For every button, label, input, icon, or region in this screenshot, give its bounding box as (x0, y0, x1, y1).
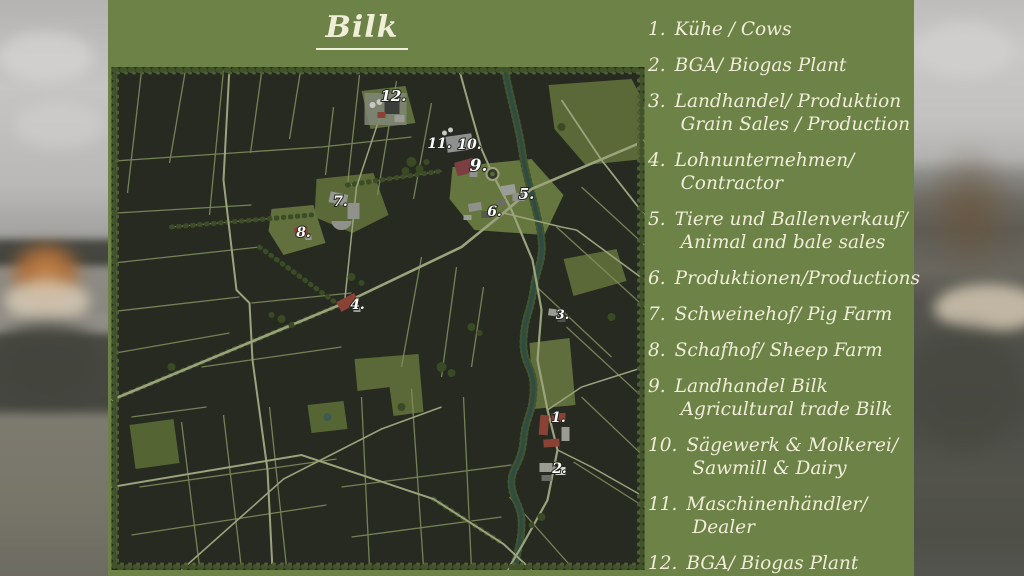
legend-item-text: BGA/ Biogas Plant (686, 552, 916, 575)
map-legend-panel: Bilk (108, 0, 914, 576)
background-photo-left-blur (0, 0, 110, 576)
cloud-blob (0, 32, 94, 82)
map-marker-4: 4. (350, 297, 365, 313)
aerial-map-svg: 12.11.10.9.5.6.7.8.4.3.1.2. (111, 67, 645, 570)
legend-item-line: Schafhof/ Sheep Farm (675, 339, 916, 362)
legend-item-line: Contractor (675, 172, 916, 195)
legend-item-11: 11.Maschinenhändler/Dealer (648, 493, 916, 539)
legend-item-10: 10.Sägewerk & Molkerei/Sawmill & Dairy (648, 434, 916, 480)
legend-item-text: Lohnunternehmen/Contractor (675, 149, 916, 195)
legend-item-text: Sägewerk & Molkerei/Sawmill & Dairy (686, 434, 916, 480)
legend-item-line: Landhandel/ Produktion (675, 90, 916, 113)
legend-item-line: BGA/ Biogas Plant (675, 54, 916, 77)
cloud-blob (914, 22, 1014, 77)
legend-item-8: 8.Schafhof/ Sheep Farm (648, 339, 916, 362)
map-marker-7: 7. (333, 194, 348, 210)
legend-item-text: Landhandel/ ProduktionGrain Sales / Prod… (675, 90, 916, 136)
legend-item-number: 4. (648, 149, 675, 195)
legend-item-5: 5.Tiere und Ballenverkauf/Animal and bal… (648, 208, 916, 254)
map-roundabout-center (490, 172, 495, 177)
map-marker-9: 9. (470, 156, 488, 176)
legend-item-line: Maschinenhändler/ (686, 493, 916, 516)
legend-item-number: 8. (648, 339, 675, 362)
legend-item-1: 1.Kühe / Cows (648, 18, 916, 41)
legend-item-line: Produktionen/Productions (675, 267, 920, 290)
legend-item-number: 7. (648, 303, 675, 326)
legend-item-line: Lohnunternehmen/ (675, 149, 916, 172)
legend-item-number: 1. (648, 18, 675, 41)
legend-item-number: 6. (648, 267, 675, 290)
legend-item-line: Tiere und Ballenverkauf/ (675, 208, 916, 231)
legend-item-line: Kühe / Cows (675, 18, 916, 41)
map-title: Bilk (316, 10, 409, 50)
map-marker-6: 6. (487, 204, 502, 220)
background-photo-right-blur (912, 0, 1024, 576)
legend-item-7: 7.Schweinehof/ Pig Farm (648, 303, 916, 326)
legend-item-3: 3.Landhandel/ ProduktionGrain Sales / Pr… (648, 90, 916, 136)
map-marker-5: 5. (519, 185, 535, 203)
legend-item-9: 9.Landhandel BilkAgricultural trade Bilk (648, 375, 916, 421)
legend-item-number: 3. (648, 90, 675, 136)
cloud-blob (14, 102, 104, 148)
legend-item-6: 6.Produktionen/Productions (648, 267, 916, 290)
legend-item-text: Schweinehof/ Pig Farm (675, 303, 916, 326)
legend-item-2: 2.BGA/ Biogas Plant (648, 54, 916, 77)
aerial-map: 12.11.10.9.5.6.7.8.4.3.1.2. (111, 67, 645, 570)
map-marker-2: 2. (551, 461, 567, 477)
legend-item-number: 10. (648, 434, 686, 480)
legend-item-text: BGA/ Biogas Plant (675, 54, 916, 77)
map-overview-image: Bilk (0, 0, 1024, 576)
legend-item-number: 12. (648, 552, 686, 575)
title-wrap: Bilk (95, 10, 629, 50)
background-photo-left (0, 0, 110, 576)
legend-item-text: Tiere und Ballenverkauf/Animal and bale … (675, 208, 916, 254)
legend-item-line: Agricultural trade Bilk (675, 398, 916, 421)
brown-tree (922, 142, 1017, 282)
map-marker-10: 10. (457, 137, 481, 153)
legend-item-text: Schafhof/ Sheep Farm (675, 339, 916, 362)
legend-item-text: Produktionen/Productions (675, 267, 920, 290)
legend-item-line: Grain Sales / Production (675, 113, 916, 136)
legend-item-number: 11. (648, 493, 686, 539)
legend-item-text: Landhandel BilkAgricultural trade Bilk (675, 375, 916, 421)
legend-item-line: Sägewerk & Molkerei/ (686, 434, 916, 457)
legend-item-line: Landhandel Bilk (675, 375, 916, 398)
legend-list: 1.Kühe / Cows2.BGA/ Biogas Plant3.Landha… (648, 18, 916, 576)
legend-item-line: Sawmill & Dairy (686, 457, 916, 480)
legend-item-number: 2. (648, 54, 675, 77)
legend-item-4: 4.Lohnunternehmen/Contractor (648, 149, 916, 195)
legend-item-line: BGA/ Biogas Plant (686, 552, 916, 575)
legend-item-number: 9. (648, 375, 675, 421)
legend-item-text: Maschinenhändler/Dealer (686, 493, 916, 539)
legend-item-12: 12.BGA/ Biogas Plant (648, 552, 916, 575)
map-marker-1: 1. (551, 410, 566, 426)
legend-item-line: Schweinehof/ Pig Farm (675, 303, 916, 326)
hay-pile (4, 280, 90, 322)
background-photo-right (912, 0, 1024, 576)
legend-item-line: Dealer (686, 516, 916, 539)
map-marker-8: 8. (296, 225, 311, 241)
map-marker-11: 11. (427, 136, 451, 152)
legend-item-text: Kühe / Cows (675, 18, 916, 41)
map-marker-3: 3. (556, 308, 570, 323)
legend-item-line: Animal and bale sales (675, 231, 916, 254)
legend-item-number: 5. (648, 208, 675, 254)
map-marker-12: 12. (380, 87, 406, 105)
